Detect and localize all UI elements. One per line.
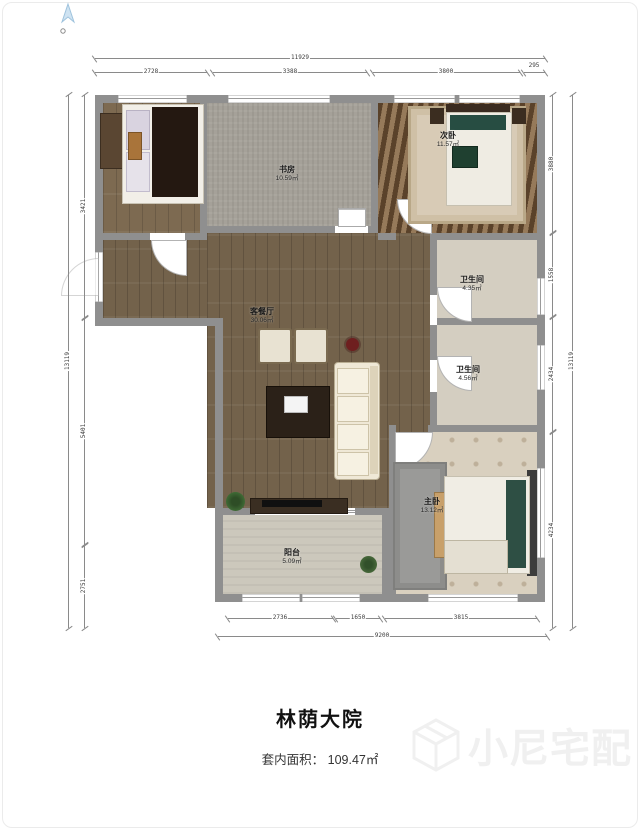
window bbox=[394, 95, 455, 103]
window bbox=[428, 594, 518, 602]
plant bbox=[226, 492, 245, 511]
wall bbox=[368, 226, 378, 233]
window bbox=[537, 345, 545, 390]
window bbox=[118, 95, 187, 103]
laptop bbox=[284, 396, 308, 413]
door-arc-entry bbox=[61, 258, 99, 296]
wall bbox=[430, 233, 537, 240]
dimension-label: 3421 bbox=[81, 198, 87, 214]
floor-lamp bbox=[346, 338, 359, 351]
pillow bbox=[450, 115, 506, 130]
armchair bbox=[294, 328, 328, 364]
room-label-study: 书房10.59㎡ bbox=[276, 165, 299, 183]
cube-logo-icon bbox=[410, 717, 462, 773]
room-label-balcony: 阳台5.09㎡ bbox=[282, 548, 301, 566]
sofa-cushion bbox=[337, 368, 369, 394]
watermark-text: 小尼宅配 bbox=[468, 716, 632, 774]
dimension-label: 13119 bbox=[569, 351, 575, 371]
bed-duvet bbox=[444, 540, 508, 574]
wall bbox=[382, 508, 389, 602]
room-balcony-floor bbox=[223, 515, 382, 594]
window bbox=[459, 95, 520, 103]
room-label-bath1: 卫生间4.35㎡ bbox=[460, 275, 484, 293]
dimension-label: 4234 bbox=[549, 522, 555, 538]
bedside-bench bbox=[128, 132, 142, 160]
wall bbox=[95, 318, 223, 326]
wall bbox=[430, 233, 437, 295]
plant bbox=[452, 146, 478, 168]
north-arrow-icon bbox=[56, 2, 80, 36]
wall bbox=[200, 226, 335, 233]
dimension-label: 11929 bbox=[290, 55, 310, 61]
tv bbox=[262, 500, 322, 507]
window bbox=[242, 594, 300, 602]
room-label-living: 客餐厅30.06㎡ bbox=[250, 307, 274, 325]
dimension-label: 2736 bbox=[272, 615, 288, 621]
dimension-label: 2434 bbox=[549, 366, 555, 382]
dimension-label: 13119 bbox=[65, 351, 71, 371]
room-label-bath2: 卫生间4.56㎡ bbox=[456, 365, 480, 383]
bed-duvet bbox=[152, 107, 198, 197]
dimension-label: 3800 bbox=[438, 69, 454, 75]
floor-plan-page: 书房10.59㎡ 次卧11.57㎡ 卫生间4.35㎡ 卫生间4.56㎡ 客餐厅3… bbox=[0, 0, 640, 830]
dimension-label: 1558 bbox=[549, 267, 555, 283]
window bbox=[537, 468, 545, 558]
interior-area-label: 套内面积： bbox=[262, 753, 325, 767]
dimension-line bbox=[524, 72, 545, 73]
wall bbox=[371, 95, 378, 226]
nightstand bbox=[512, 108, 526, 124]
dimension-label: 2751 bbox=[81, 578, 87, 594]
window bbox=[537, 278, 545, 315]
pillow bbox=[506, 480, 526, 568]
dimension-label: 5401 bbox=[81, 423, 87, 439]
interior-area-value: 109.47㎡ bbox=[328, 753, 379, 767]
wall bbox=[185, 233, 207, 240]
wall bbox=[378, 233, 396, 240]
window bbox=[302, 594, 360, 602]
dimension-label: 1650 bbox=[350, 615, 366, 621]
sofa-cushion bbox=[337, 424, 369, 450]
watermark: 小尼宅配 bbox=[410, 716, 632, 774]
plant bbox=[360, 556, 377, 573]
dimension-label: 295 bbox=[528, 63, 541, 69]
sofa-back bbox=[370, 366, 378, 474]
sofa-cushion bbox=[337, 396, 369, 422]
room-label-master: 主卧13.12㎡ bbox=[421, 497, 444, 515]
entry-step bbox=[338, 208, 366, 227]
armchair bbox=[258, 328, 292, 364]
dimension-label: 3815 bbox=[453, 615, 469, 621]
dimension-label: 9200 bbox=[374, 633, 390, 639]
wall bbox=[430, 392, 437, 425]
dimension-line bbox=[95, 58, 545, 59]
wall bbox=[215, 318, 223, 602]
room-label-bedroom2: 次卧11.57㎡ bbox=[437, 131, 459, 149]
wall bbox=[430, 325, 437, 360]
dimension-label: 2728 bbox=[143, 69, 159, 75]
wall bbox=[437, 318, 537, 325]
nightstand bbox=[430, 108, 444, 124]
wall bbox=[95, 233, 150, 240]
window bbox=[228, 95, 330, 103]
sofa-cushion bbox=[337, 452, 369, 476]
dimension-label: 3388 bbox=[282, 69, 298, 75]
dimension-label: 3880 bbox=[549, 156, 555, 172]
wall bbox=[428, 425, 537, 432]
